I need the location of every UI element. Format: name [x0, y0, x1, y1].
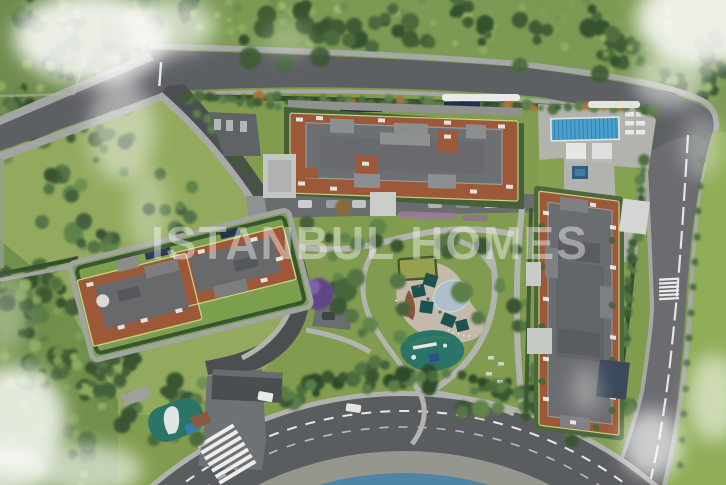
svg-text:ISTANBUL HOMES: ISTANBUL HOMES [151, 217, 589, 269]
